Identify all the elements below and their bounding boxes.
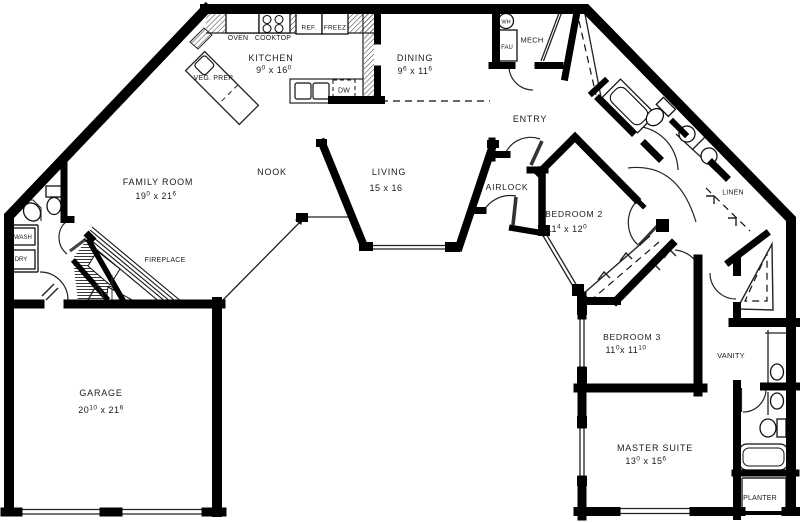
svg-text:DRY: DRY [15,257,28,263]
svg-text:NOOK: NOOK [257,167,287,177]
svg-text:2010 x 216: 2010 x 216 [78,405,123,416]
svg-text:ENTRY: ENTRY [513,114,547,124]
svg-text:FAU: FAU [501,45,513,51]
svg-text:OVEN: OVEN [228,35,249,42]
svg-text:FAMILY ROOM: FAMILY ROOM [123,177,193,187]
svg-text:FIREPLACE: FIREPLACE [145,257,186,264]
svg-text:VEG. PREP.: VEG. PREP. [194,75,235,82]
svg-text:LIVING: LIVING [372,167,406,177]
svg-text:WH: WH [501,20,510,26]
svg-text:90 x 160: 90 x 160 [256,65,292,76]
svg-text:GARAGE: GARAGE [79,388,122,398]
svg-text:BEDROOM 2: BEDROOM 2 [545,209,603,219]
svg-text:LINEN: LINEN [722,190,744,197]
svg-text:AIRLOCK: AIRLOCK [486,182,529,192]
svg-text:PLANTER: PLANTER [743,495,777,502]
svg-text:BEDROOM 3: BEDROOM 3 [603,332,661,342]
svg-text:DW: DW [338,88,350,95]
svg-text:DINING: DINING [397,53,433,63]
svg-text:114 x 120: 114 x 120 [547,224,588,235]
svg-text:FREEZ: FREEZ [324,25,346,32]
svg-text:15 x 16: 15 x 16 [369,183,402,193]
svg-text:MECH: MECH [521,36,544,45]
svg-text:KITCHEN: KITCHEN [248,53,293,63]
svg-text:MASTER SUITE: MASTER SUITE [617,443,693,453]
svg-text:96 x 116: 96 x 116 [397,66,432,77]
svg-text:WASH: WASH [14,235,32,241]
svg-text:130 x 156: 130 x 156 [625,456,666,467]
svg-text:190 x 216: 190 x 216 [135,191,176,202]
svg-text:COOKTOP: COOKTOP [255,35,291,42]
svg-text:REF.: REF. [302,25,317,32]
svg-text:VANITY: VANITY [717,351,745,360]
